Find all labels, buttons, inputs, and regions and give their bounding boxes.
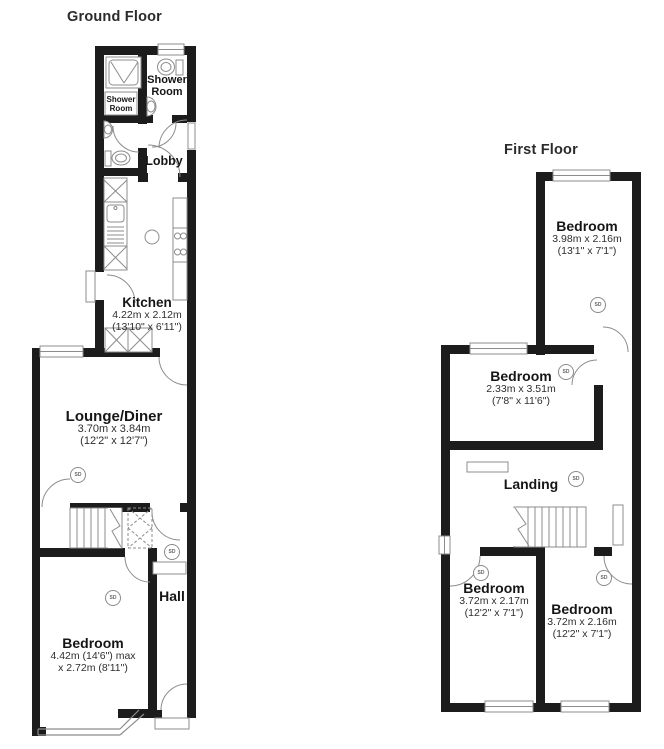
room-name: Bedroom xyxy=(486,369,555,384)
front-door-arc xyxy=(161,684,187,710)
room-dims-imperial: (12'2" x 7'1") xyxy=(459,608,528,620)
smoke-detector-icon: SD xyxy=(70,467,86,483)
room-name: Bedroom xyxy=(552,219,621,234)
ceiling-light-icon xyxy=(145,230,159,244)
toilet-wc xyxy=(105,151,130,166)
room-dims-imperial: (12'2" x 12'7") xyxy=(66,436,163,448)
lobby-entrance-slab xyxy=(188,123,195,149)
room-dims-metric: 3.70m x 3.84m xyxy=(66,424,163,436)
shower-enclosure xyxy=(106,57,141,88)
room-name: Kitchen xyxy=(112,295,182,310)
smoke-detector-icon: SD xyxy=(596,570,612,586)
room-name: Room xyxy=(107,105,136,114)
toilet-rear xyxy=(158,59,184,75)
lounge-door-arc xyxy=(42,479,70,507)
label-kitchen: Kitchen 4.22m x 2.12m (13'10" x 6'11") xyxy=(112,295,182,333)
ground-floor-plan xyxy=(32,44,196,736)
room-dims-metric: 2.33m x 3.51m xyxy=(486,384,555,396)
kitchen-counter-left xyxy=(104,178,127,270)
label-shower-room-small: Shower Room xyxy=(107,96,136,113)
stairs-cupboard-hatch xyxy=(128,508,152,548)
label-lobby: Lobby xyxy=(145,154,183,168)
room-dims-imperial: (13'1" x 7'1") xyxy=(552,246,621,258)
smoke-detector-icon: SD xyxy=(164,544,180,560)
ground-floor-title: Ground Floor xyxy=(67,9,162,25)
front-door-threshold xyxy=(155,718,189,729)
landing-shelf xyxy=(467,462,508,472)
label-lounge-diner: Lounge/Diner 3.70m x 3.84m (12'2" x 12'7… xyxy=(66,409,163,447)
wc-door-arc xyxy=(113,126,139,152)
basin-shower-room xyxy=(147,97,156,116)
rear-bedroom-door-arc xyxy=(603,327,628,352)
room-name: Room xyxy=(147,87,187,99)
label-bedroom-front-left: Bedroom 3.72m x 2.17m (12'2" x 7'1") xyxy=(459,581,528,619)
smoke-detector-icon: SD xyxy=(473,565,489,581)
room-name: Bedroom xyxy=(547,602,616,617)
room-dims-metric: 3.72m x 2.17m xyxy=(459,596,528,608)
basin-wc xyxy=(104,121,113,138)
kitchen-counter-right xyxy=(173,198,187,300)
label-shower-room-rear: Shower Room xyxy=(147,75,187,98)
room-name: Bedroom xyxy=(50,636,135,651)
room-dims-metric: 4.22m x 2.12m xyxy=(112,310,182,322)
room-dims-imperial: x 2.72m (8'11") xyxy=(50,663,135,675)
hall-radiator xyxy=(153,562,186,574)
stairs-ground xyxy=(70,508,122,548)
room-dims-imperial: (13'10" x 6'11") xyxy=(112,322,182,334)
room-name: Shower xyxy=(147,75,187,87)
label-hall: Hall xyxy=(159,589,185,604)
room-dims-metric: 3.98m x 2.16m xyxy=(552,234,621,246)
landing-cupboard xyxy=(613,505,623,545)
label-ground-bedroom: Bedroom 4.42m (14'6") max x 2.72m (8'11"… xyxy=(50,636,135,674)
label-bedroom-front-right: Bedroom 3.72m x 2.16m (12'2" x 7'1") xyxy=(547,602,616,640)
room-dims-imperial: (7'8" x 11'6") xyxy=(486,396,555,408)
side-door-slab xyxy=(86,271,95,302)
room-name: Bedroom xyxy=(459,581,528,596)
label-landing: Landing xyxy=(504,477,558,492)
bedroom-door-arc xyxy=(125,557,150,582)
stairs-first xyxy=(512,507,586,547)
ground-floor-walls xyxy=(32,46,196,736)
smoke-detector-icon: SD xyxy=(105,590,121,606)
middle-bedroom-door-arc xyxy=(572,360,597,385)
smoke-detector-icon: SD xyxy=(568,471,584,487)
floorplan-canvas: Ground Floor Shower Room Shower Room Lob… xyxy=(0,0,664,749)
hall-door-arc xyxy=(152,512,180,540)
kitchen-lounge-door-arc xyxy=(159,357,187,385)
shower-room-door-arc xyxy=(152,123,176,147)
room-dims-imperial: (12'2" x 7'1") xyxy=(547,629,616,641)
room-dims-metric: 3.72m x 2.16m xyxy=(547,617,616,629)
label-bedroom-middle: Bedroom 2.33m x 3.51m (7'8" x 11'6") xyxy=(486,369,555,407)
first-floor-title: First Floor xyxy=(504,142,578,158)
smoke-detector-icon: SD xyxy=(590,297,606,313)
room-name: Lounge/Diner xyxy=(66,409,163,424)
room-dims-metric: 4.42m (14'6") max xyxy=(50,651,135,663)
label-bedroom-rear: Bedroom 3.98m x 2.16m (13'1" x 7'1") xyxy=(552,219,621,257)
smoke-detector-icon: SD xyxy=(558,364,574,380)
